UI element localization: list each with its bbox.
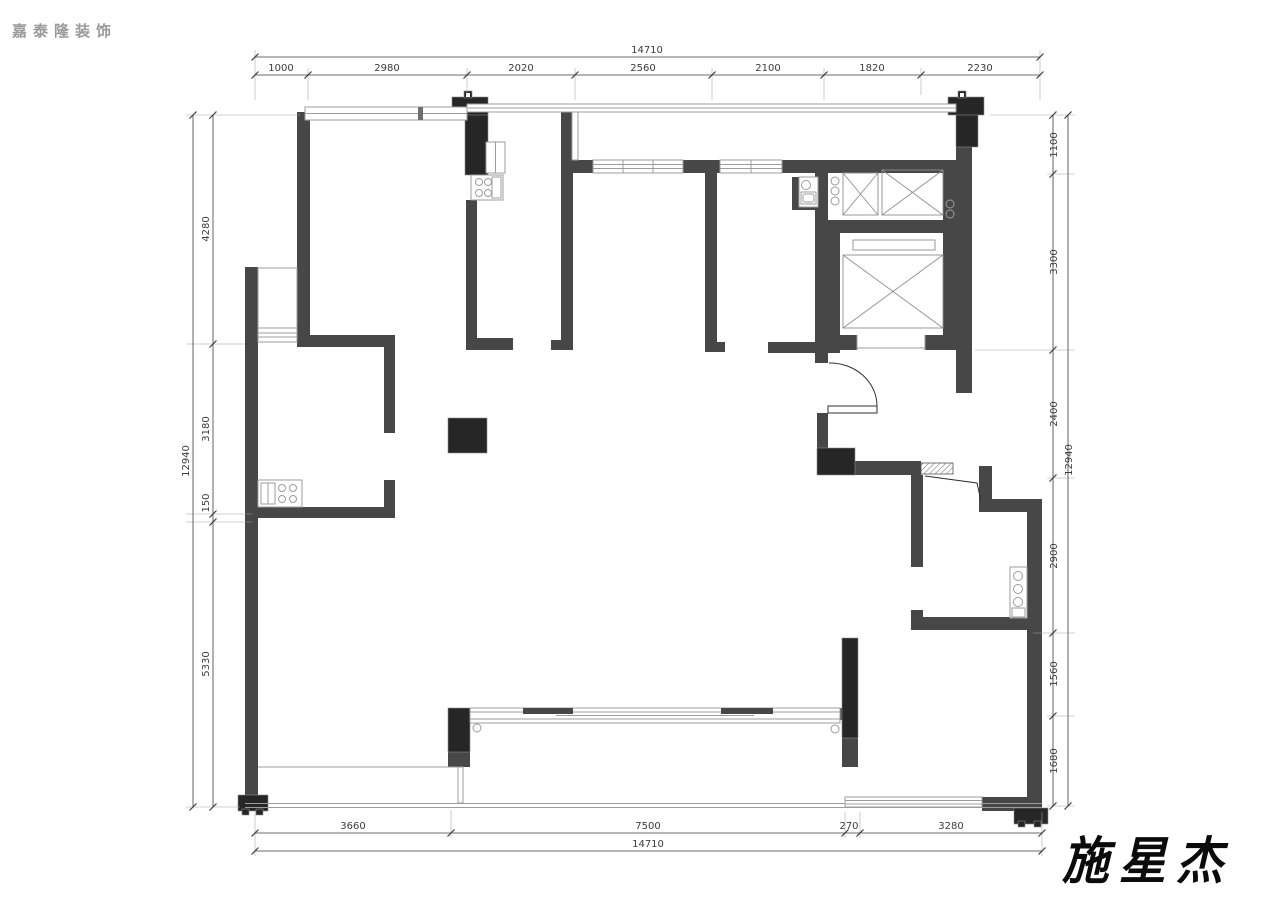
elevator-shafts [831, 170, 954, 350]
pipe-icon [831, 197, 839, 205]
window-room-2560 [593, 160, 683, 173]
dim-top-4: 2100 [755, 63, 780, 74]
dim-top-1: 2980 [374, 63, 399, 74]
pipe-icon [831, 187, 839, 195]
dim-right-0: 1100 [1049, 132, 1060, 157]
floor-plan-canvas: 14710 1000 2980 2020 2560 2100 1820 2230… [0, 0, 1280, 905]
designer-signature: 施星杰 [1062, 819, 1272, 894]
dim-bottom-total: 14710 [632, 839, 664, 850]
window-room-2100 [720, 160, 782, 173]
column-bottom-right [842, 638, 858, 738]
dim-right-1: 3300 [1049, 249, 1060, 274]
column-cap-bottom-left-icon [238, 795, 268, 815]
dim-left-0: 4280 [201, 216, 212, 241]
floorplan-page: { "branding": { "logo_text": "嘉泰隆装饰", "s… [0, 0, 1280, 905]
elevator-car-x-symbol [843, 240, 943, 328]
dim-top-3: 2560 [630, 63, 655, 74]
dim-left-2: 150 [201, 493, 212, 512]
entry-door-swing [828, 363, 877, 413]
fridge-icon [486, 142, 505, 173]
column-cap-bottom-right-icon [1014, 808, 1048, 827]
left-closet [258, 268, 297, 342]
column-center [448, 418, 487, 453]
column-top-left [465, 110, 488, 175]
dim-right-5: 1680 [1049, 748, 1060, 773]
dim-top-0: 1000 [268, 63, 293, 74]
dimension-lines [190, 54, 1072, 855]
balcony-thin-wall [458, 767, 463, 803]
dim-left-3: 5330 [201, 651, 212, 676]
dim-bottom-3: 3280 [938, 821, 963, 832]
dim-right-2: 2400 [1049, 401, 1060, 426]
right-balcony-window [845, 797, 982, 807]
lobby-basin-icon [792, 177, 818, 210]
dim-right-4: 1560 [1049, 661, 1060, 686]
top-window-band-right [467, 104, 956, 112]
kitchen-counter-top [471, 175, 503, 200]
dim-top-6: 2230 [967, 63, 992, 74]
pipe-icon [831, 177, 839, 185]
dim-top-total: 14710 [631, 45, 663, 56]
interior-door-swing [925, 476, 981, 501]
column-bottom-left [448, 708, 470, 752]
bottom-window-band [470, 708, 840, 723]
dim-top-5: 1820 [859, 63, 884, 74]
machine-room-x-symbol [831, 170, 954, 218]
dim-bottom-0: 3660 [340, 821, 365, 832]
elevator-door-opening [857, 335, 925, 350]
dim-right-3: 2900 [1049, 543, 1060, 568]
dim-right-total: 12940 [1064, 444, 1075, 476]
bathroom-basin-column-icon [1010, 567, 1027, 618]
column-top-right [956, 113, 978, 147]
top-window-band-left [305, 107, 467, 120]
hatch-window [921, 463, 953, 474]
dim-bottom-1: 7500 [635, 821, 660, 832]
dim-bottom-2: 270 [839, 821, 858, 832]
dim-top-2: 2020 [508, 63, 533, 74]
balcony-drain-icon [473, 724, 481, 732]
column-entry [817, 448, 855, 475]
dim-left-total: 12940 [181, 445, 192, 477]
band-connector [572, 112, 578, 160]
dim-left-1: 3180 [201, 416, 212, 441]
balcony-drain-icon [831, 725, 839, 733]
exterior-and-interior-walls [245, 112, 1042, 811]
windows-and-thin-lines [245, 104, 1042, 808]
kitchen-counter-left [258, 480, 302, 507]
